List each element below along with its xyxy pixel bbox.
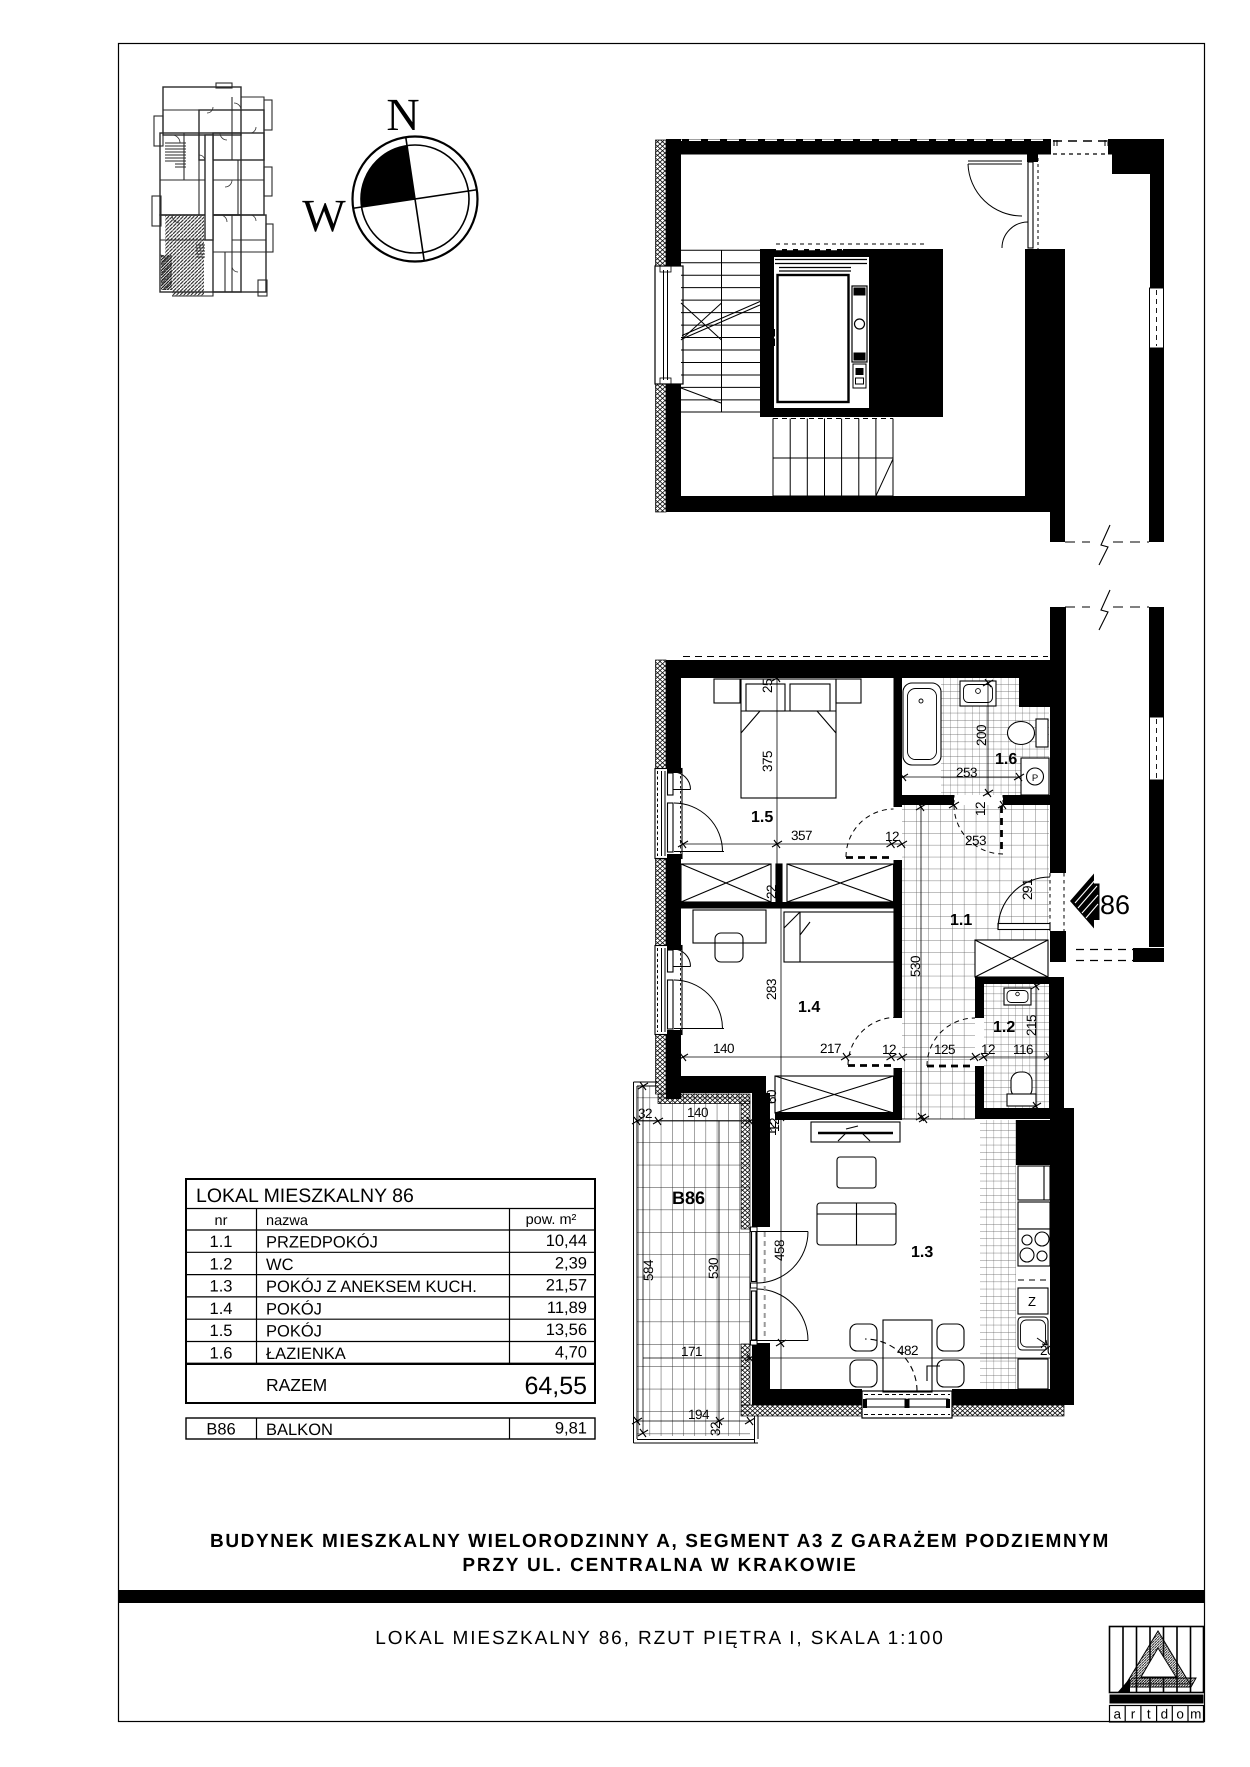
- svg-text:215: 215: [1024, 1015, 1039, 1036]
- svg-text:21,57: 21,57: [546, 1277, 587, 1295]
- svg-text:253: 253: [965, 833, 986, 848]
- svg-text:POKÓJ: POKÓJ: [266, 1299, 322, 1318]
- svg-text:482: 482: [897, 1343, 918, 1358]
- svg-text:PRZEDPOKÓJ: PRZEDPOKÓJ: [266, 1233, 378, 1252]
- svg-text:9,81: 9,81: [555, 1420, 587, 1438]
- svg-text:22: 22: [764, 885, 779, 899]
- svg-text:32: 32: [638, 1106, 652, 1121]
- svg-text:LOKAL MIESZKALNY 86: LOKAL MIESZKALNY 86: [196, 1185, 414, 1207]
- svg-text:Z: Z: [1028, 1294, 1036, 1309]
- svg-text:nazwa: nazwa: [266, 1213, 309, 1229]
- svg-text:200: 200: [974, 725, 989, 746]
- svg-text:POKÓJ: POKÓJ: [266, 1322, 322, 1341]
- svg-text:r: r: [1131, 1707, 1136, 1722]
- svg-text:1.3: 1.3: [210, 1278, 233, 1296]
- svg-text:1.2: 1.2: [210, 1255, 233, 1273]
- svg-text:530: 530: [908, 956, 923, 977]
- svg-text:11,89: 11,89: [547, 1299, 587, 1317]
- svg-text:10,44: 10,44: [546, 1232, 587, 1250]
- svg-text:POKÓJ Z ANEKSEM KUCH.: POKÓJ Z ANEKSEM KUCH.: [266, 1277, 477, 1296]
- svg-text:584: 584: [641, 1259, 656, 1281]
- svg-text:1.4: 1.4: [798, 999, 820, 1016]
- svg-text:m: m: [1190, 1707, 1201, 1722]
- svg-text:12: 12: [767, 1118, 782, 1132]
- svg-text:2,39: 2,39: [555, 1254, 587, 1272]
- svg-text:1.3: 1.3: [911, 1244, 933, 1261]
- svg-text:P: P: [1032, 773, 1038, 784]
- svg-text:458: 458: [772, 1240, 787, 1261]
- svg-text:W: W: [302, 190, 346, 241]
- svg-text:32: 32: [708, 1422, 723, 1436]
- svg-text:171: 171: [681, 1344, 702, 1359]
- svg-text:BALKON: BALKON: [266, 1421, 333, 1439]
- svg-text:pow. m²: pow. m²: [526, 1212, 577, 1228]
- svg-text:217: 217: [820, 1041, 841, 1056]
- svg-text:13,56: 13,56: [546, 1321, 587, 1339]
- svg-text:291: 291: [1020, 879, 1035, 900]
- svg-text:B86: B86: [206, 1421, 235, 1439]
- svg-text:12: 12: [981, 1042, 995, 1057]
- svg-text:B86: B86: [672, 1188, 705, 1208]
- svg-text:ŁAZIENKA: ŁAZIENKA: [266, 1345, 346, 1363]
- svg-text:a: a: [1114, 1707, 1122, 1722]
- svg-text:1.5: 1.5: [210, 1322, 233, 1340]
- svg-text:o: o: [1176, 1707, 1184, 1722]
- svg-text:357: 357: [791, 828, 812, 843]
- svg-text:253: 253: [956, 765, 977, 780]
- svg-text:375: 375: [760, 751, 775, 772]
- svg-text:BUDYNEK MIESZKALNY WIELORODZIN: BUDYNEK MIESZKALNY WIELORODZINNY A, SEGM…: [210, 1530, 1110, 1552]
- svg-text:25: 25: [760, 679, 775, 693]
- svg-text:4,70: 4,70: [555, 1344, 587, 1362]
- svg-text:194: 194: [688, 1407, 710, 1422]
- svg-text:12: 12: [885, 829, 899, 844]
- svg-text:nr: nr: [215, 1213, 228, 1229]
- svg-text:86: 86: [1100, 890, 1130, 920]
- svg-text:1.2: 1.2: [993, 1019, 1015, 1036]
- svg-text:12: 12: [882, 1042, 896, 1057]
- svg-text:12: 12: [973, 802, 988, 816]
- svg-text:530: 530: [706, 1258, 721, 1279]
- svg-text:RAZEM: RAZEM: [266, 1375, 327, 1395]
- svg-text:116: 116: [1013, 1042, 1033, 1057]
- svg-text:1.1: 1.1: [950, 912, 972, 929]
- svg-text:WC: WC: [266, 1256, 294, 1274]
- svg-text:60: 60: [764, 1090, 779, 1104]
- svg-text:1.1: 1.1: [210, 1233, 233, 1251]
- svg-text:1.5: 1.5: [751, 809, 773, 826]
- svg-text:1.6: 1.6: [210, 1345, 233, 1363]
- svg-text:1.6: 1.6: [995, 751, 1017, 768]
- svg-text:PRZY UL. CENTRALNA W KRAKOWIE: PRZY UL. CENTRALNA W KRAKOWIE: [462, 1555, 857, 1576]
- svg-text:125: 125: [934, 1042, 955, 1057]
- svg-text:140: 140: [713, 1041, 734, 1056]
- svg-text:N: N: [386, 89, 419, 140]
- svg-text:283: 283: [764, 979, 779, 1000]
- svg-text:20: 20: [1040, 1343, 1054, 1358]
- svg-text:140: 140: [687, 1105, 708, 1120]
- svg-text:1.4: 1.4: [210, 1300, 233, 1318]
- svg-text:t: t: [1147, 1707, 1151, 1722]
- svg-text:d: d: [1161, 1707, 1169, 1722]
- svg-text:64,55: 64,55: [524, 1372, 587, 1400]
- svg-text:LOKAL MIESZKALNY 86, RZUT PIĘT: LOKAL MIESZKALNY 86, RZUT PIĘTRA I, SKAL…: [375, 1628, 944, 1649]
